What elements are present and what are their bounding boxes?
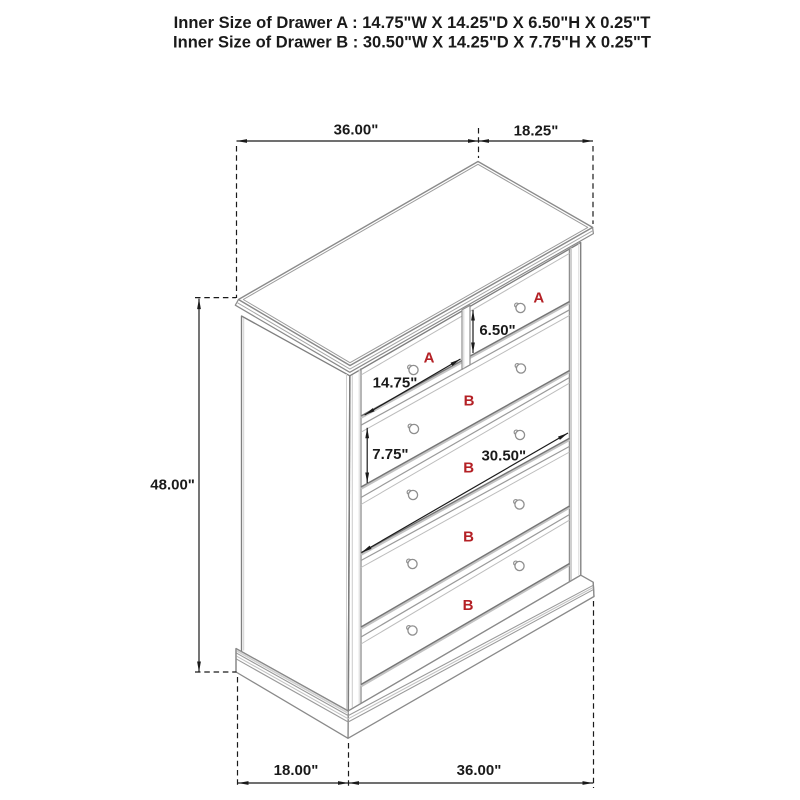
svg-text:Inner Size of Drawer A : 14.75: Inner Size of Drawer A : 14.75"W X 14.25… [174, 14, 651, 32]
svg-text:A: A [424, 349, 435, 366]
svg-text:36.00": 36.00" [334, 122, 379, 139]
svg-text:B: B [463, 459, 474, 476]
svg-text:36.00": 36.00" [457, 762, 502, 779]
svg-text:Inner Size of Drawer B : 30.50: Inner Size of Drawer B : 30.50"W X 14.25… [173, 34, 651, 52]
svg-text:7.75": 7.75" [372, 446, 408, 463]
svg-text:B: B [464, 392, 475, 409]
svg-text:48.00": 48.00" [150, 477, 195, 494]
svg-text:18.00": 18.00" [274, 762, 319, 779]
svg-text:B: B [463, 597, 474, 614]
svg-text:B: B [463, 528, 474, 545]
svg-text:A: A [533, 289, 544, 306]
svg-text:18.25": 18.25" [514, 123, 559, 140]
svg-text:6.50": 6.50" [479, 322, 515, 339]
